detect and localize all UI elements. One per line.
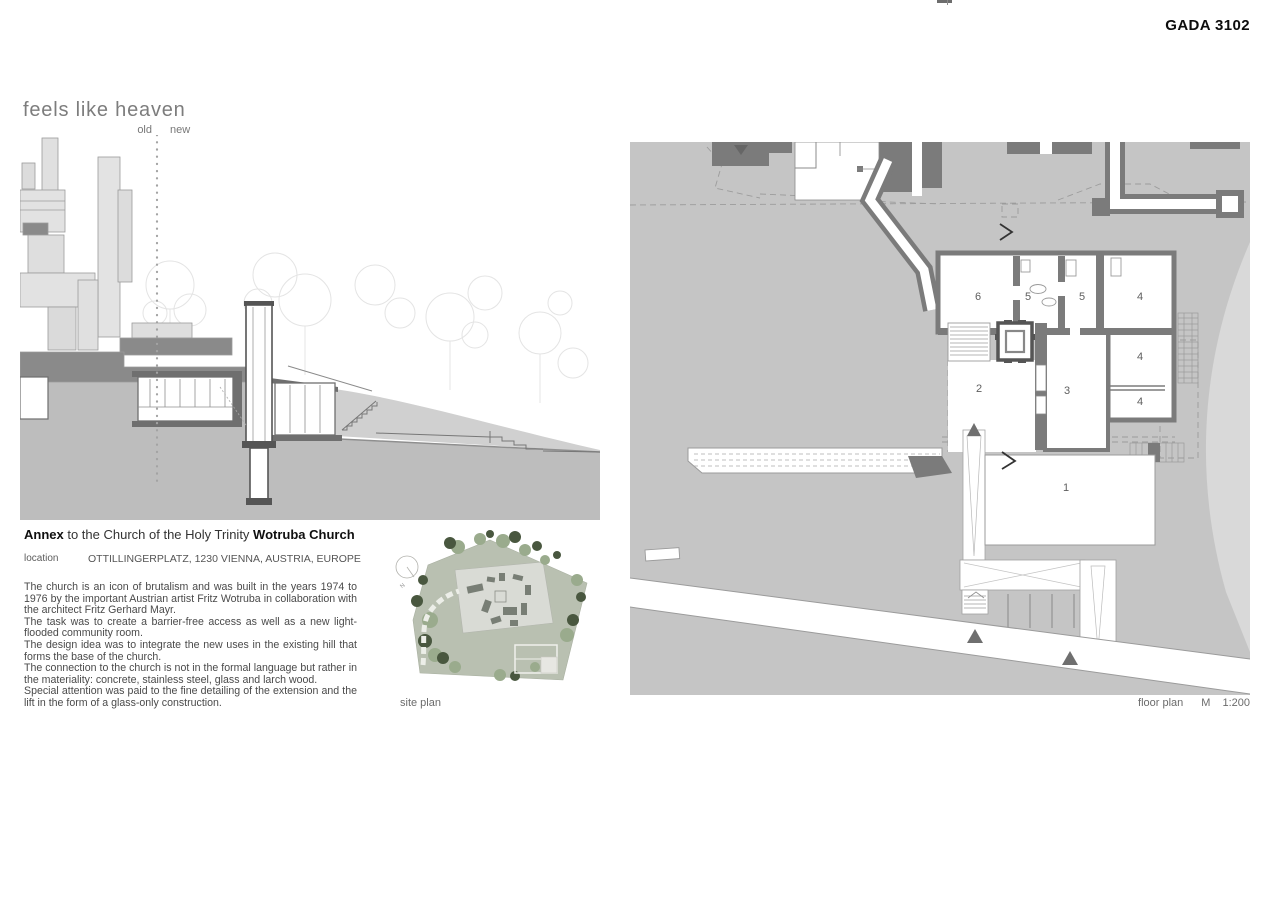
site-plan-caption: site plan [400, 697, 441, 709]
site-plateau [455, 562, 553, 633]
description-line: Special attention was paid to the fine d… [24, 686, 357, 709]
caption-mid: to the Church of the Holy Trinity [64, 527, 253, 542]
caption-wotruba: Wotruba Church [253, 527, 355, 542]
scale-value: 1:200 [1222, 697, 1250, 709]
project-code: GADA 3102 [1165, 17, 1250, 34]
caption-annex: Annex [24, 527, 64, 542]
room-number: 6 [975, 291, 981, 303]
stairs [948, 323, 990, 361]
location-value: OTTILLINGERPLATZ, 1230 VIENNA, AUSTRIA, … [88, 553, 361, 565]
site-plan-drawing: N [395, 525, 610, 700]
description-line: The task was to create a barrier-free ac… [24, 617, 357, 640]
floor-plan-caption: floor planM1:200 [1138, 697, 1250, 709]
room-number: 3 [1064, 385, 1070, 397]
north-arrow: N [396, 556, 418, 590]
church-blocks [20, 138, 270, 382]
floor-plan-label: floor plan [1138, 697, 1183, 709]
location-row: location OTTILLINGERPLATZ, 1230 VIENNA, … [24, 553, 361, 565]
room-number: 4 [1137, 396, 1143, 408]
floor-plan-drawing: 6 5 5 4 4 2 3 4 1 [630, 142, 1250, 695]
north-label: N [399, 583, 406, 590]
description-text: The church is an icon of brutalism and w… [24, 582, 357, 710]
description-line: The design idea was to integrate the new… [24, 640, 357, 663]
crop-fragment-mark [937, 0, 952, 3]
presentation-board: GADA 3102 feels like heaven old new [0, 0, 1273, 900]
lift-shaft [995, 320, 1035, 363]
description-line: The connection to the church is not in t… [24, 663, 357, 686]
ramp [688, 448, 952, 478]
description-line: The church is an icon of brutalism and w… [24, 582, 357, 617]
page-title: feels like heaven [23, 99, 186, 122]
room-1 [985, 455, 1155, 545]
room-number: 4 [1137, 291, 1143, 303]
room-number: 1 [1063, 482, 1069, 494]
section-drawing [20, 135, 600, 520]
room-number: 4 [1137, 351, 1143, 363]
room-number: 5 [1079, 291, 1085, 303]
footpath [963, 423, 985, 560]
scale-label: M [1201, 697, 1210, 709]
location-label: location [24, 553, 88, 565]
room-number: 2 [976, 383, 982, 395]
bench [645, 548, 680, 561]
room-number: 5 [1025, 291, 1031, 303]
